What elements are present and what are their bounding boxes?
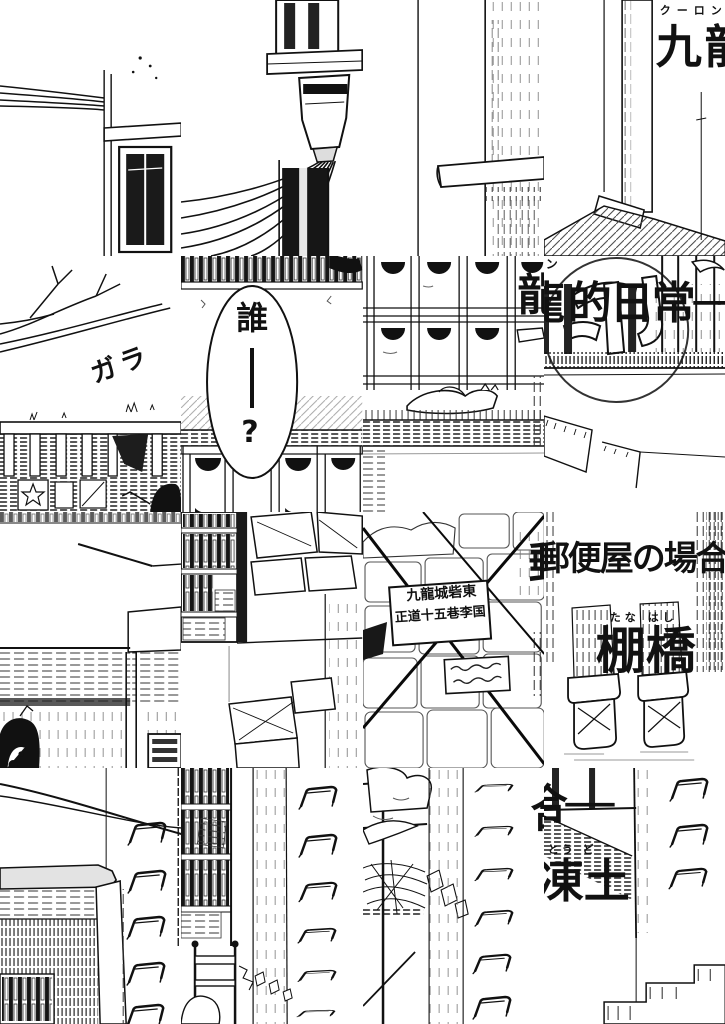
title-kowloon: 九龍: [656, 24, 725, 70]
pillar-ledge-artwork: [363, 0, 544, 256]
title-yubin-partial: 郵: [529, 542, 544, 586]
tile-r2-c2: 九龍城砦東 正道十五巷李国 郵: [363, 512, 544, 768]
wall-wires-window-artwork: [0, 0, 181, 256]
bookshelf-boxes-artwork: [181, 512, 362, 768]
rung-column: [126, 823, 165, 1024]
stacked-boxes: [251, 512, 362, 595]
scaffold-nest-artwork: [363, 768, 544, 1024]
chair: [181, 941, 239, 1024]
title-no-nichijou: 的日常──: [568, 282, 725, 326]
branches-fence-artwork: [0, 256, 181, 512]
kowloon-furigana: クーロン: [660, 5, 725, 16]
tile-r0-c3: クーロン 九龍: [544, 0, 725, 256]
cartons: [229, 678, 335, 768]
counter-girl-artwork: [0, 512, 181, 768]
author-given: 凍土: [544, 858, 630, 904]
tile-r3-c1: [181, 768, 362, 1024]
bubble-wall-artwork: [181, 256, 362, 512]
steps: [604, 965, 725, 1024]
furigana-n-partial: ン: [546, 258, 558, 270]
tile-r0-c1: [181, 0, 362, 256]
bubble-who: 誰: [236, 302, 268, 334]
rung-column: [297, 787, 336, 1017]
tile-r1-c3: ン 龍 的日常──: [544, 256, 725, 512]
tile-r1-c1: 誰 ?: [181, 256, 362, 512]
tile-r3-c0: [0, 768, 181, 1024]
junction-box-artwork: [181, 0, 362, 256]
straw-nest: [363, 860, 427, 914]
rung-column: [473, 784, 512, 1019]
tile-r2-c1: [181, 512, 362, 768]
tile-r1-c2: 龍: [363, 256, 544, 512]
bubble-prolonged-dash: [250, 348, 254, 408]
title-go-dash: 合──: [544, 784, 613, 826]
manga-page: クーロン 九龍: [0, 0, 725, 1024]
tile-r1-c0: ガラ: [0, 256, 181, 512]
tile-r2-c0: [0, 512, 181, 768]
tile-r2-c3: 郵便屋の場合 たな はし 棚橋: [544, 512, 725, 768]
author-surname: 棚橋: [596, 626, 696, 676]
steps: [544, 416, 725, 488]
title-ryu-partial-left: 龍: [518, 274, 544, 318]
small-handwritten-sign: [444, 656, 510, 693]
tile-r3-c3: 合── とう ど 凍土: [544, 768, 725, 1024]
title-yubinya: 郵便屋の場合: [544, 542, 725, 576]
corner-rungs-artwork: [0, 768, 181, 1024]
tile-r3-c2: 合: [363, 768, 544, 1024]
bubble-question: ?: [241, 418, 258, 448]
sacks: [367, 768, 431, 812]
tile-r0-c0: [0, 0, 181, 256]
library-rungs-artwork: [181, 768, 362, 1024]
tile-r0-c2: [363, 0, 544, 256]
grass-tufts: [30, 403, 154, 420]
rung-column: [669, 779, 707, 889]
title-go-partial-left: 合: [531, 792, 544, 834]
title-ryu-partial-right: 龍: [544, 282, 565, 326]
parcel-stack-artwork: [363, 512, 544, 768]
